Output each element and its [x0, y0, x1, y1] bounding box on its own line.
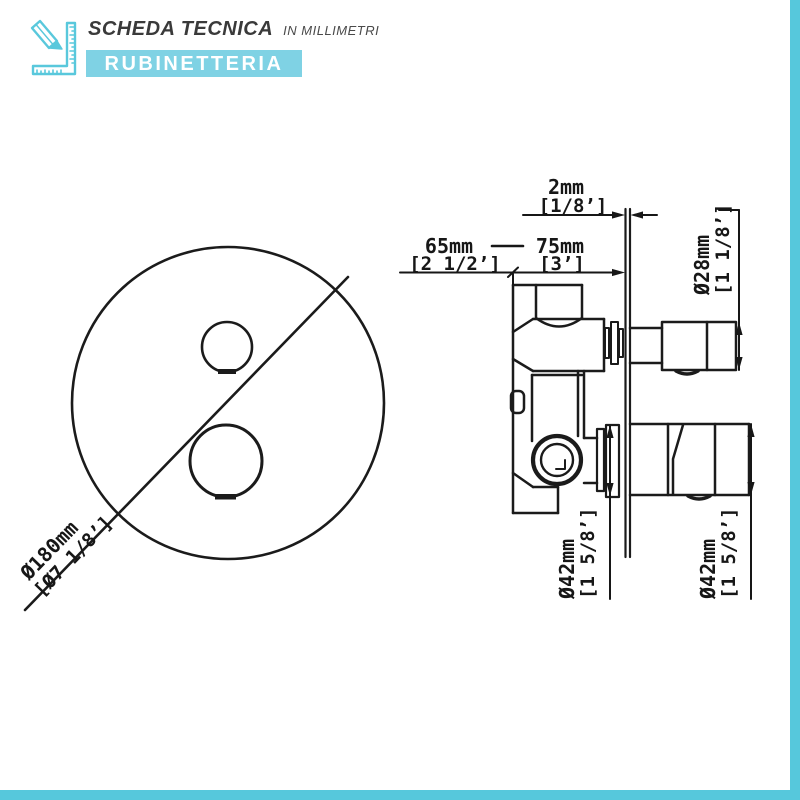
label-knob-top-mm: Ø28mm	[690, 235, 714, 296]
label-knob-bottom-mm: Ø42mm	[696, 539, 720, 600]
front-view-label: Ø180mm [Ø7 1/8’]	[15, 512, 117, 601]
label-flange-mm: Ø42mm	[555, 539, 579, 600]
label-plate-in: [1/8’]	[539, 195, 608, 217]
diverter-flange-1	[597, 429, 604, 491]
lower-handle-facet	[673, 425, 683, 494]
upper-handle-detent	[676, 371, 698, 374]
bottom-knob-circle	[190, 425, 262, 497]
lower-handle-detent	[688, 496, 710, 499]
label-knob-bottom-in: [1 5/8’]	[718, 507, 740, 599]
label-depth-max-in: [3’]	[539, 253, 585, 275]
bottom-knob-index-mark	[215, 494, 236, 500]
diverter-port-inner	[541, 444, 573, 476]
label-depth-min-in: [2 1/2’]	[409, 253, 501, 275]
bottom-edge-accent	[0, 790, 800, 800]
top-knob-circle	[202, 322, 252, 372]
dim-flange	[606, 425, 613, 599]
top-knob-index-mark	[218, 369, 236, 374]
right-edge-accent	[790, 0, 800, 800]
dimension-labels: 2mm [1/8’] 65mm 75mm [2 1/2’] [3’] Ø28mm…	[409, 175, 740, 600]
label-flange-in: [1 5/8’]	[577, 507, 599, 599]
technical-drawing: Ø180mm [Ø7 1/8’]	[0, 0, 800, 800]
diverter-key-notch	[556, 460, 565, 469]
label-knob-top-in: [1 1/8’]	[712, 203, 734, 295]
upper-handle	[662, 322, 736, 370]
